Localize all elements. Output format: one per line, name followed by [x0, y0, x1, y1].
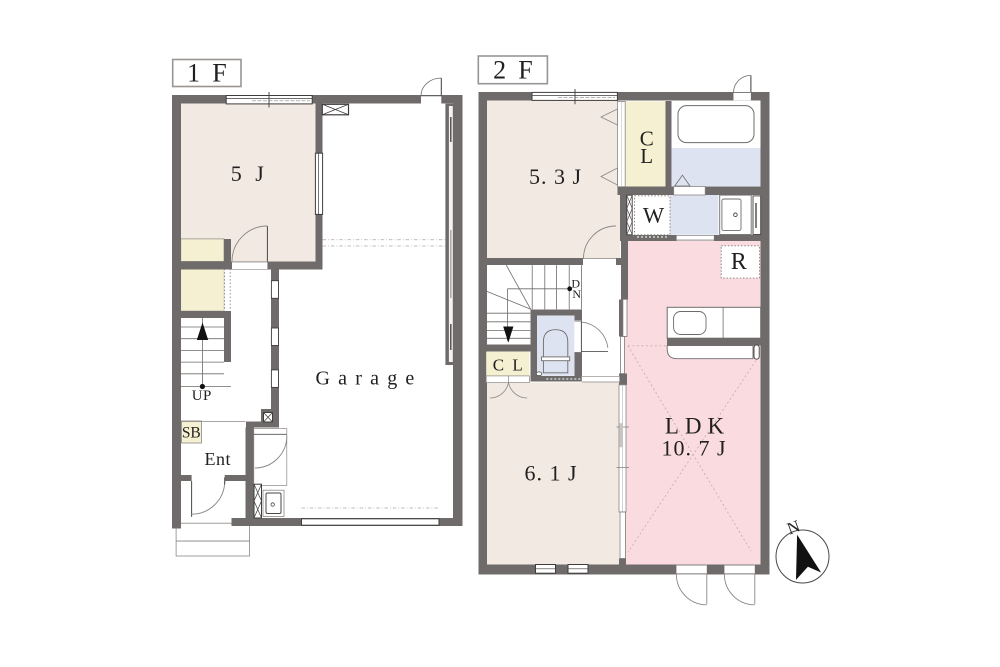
svg-text:R: R: [731, 249, 747, 275]
svg-text:Garage: Garage: [316, 368, 423, 390]
svg-text:UP: UP: [192, 388, 212, 404]
svg-text:2 F: 2 F: [493, 56, 535, 85]
svg-text:10. 7 J: 10. 7 J: [661, 436, 726, 461]
svg-text:N: N: [572, 287, 581, 301]
svg-text:W: W: [643, 203, 665, 228]
svg-text:5. 3 J: 5. 3 J: [529, 164, 582, 189]
svg-text:1 F: 1 F: [187, 59, 229, 88]
svg-text:C L: C L: [493, 356, 525, 375]
svg-text:5 J: 5 J: [231, 161, 268, 186]
svg-text:L: L: [640, 144, 653, 168]
svg-text:SB: SB: [182, 425, 201, 442]
svg-text:6. 1 J: 6. 1 J: [524, 461, 577, 486]
svg-text:Ent: Ent: [205, 449, 232, 469]
